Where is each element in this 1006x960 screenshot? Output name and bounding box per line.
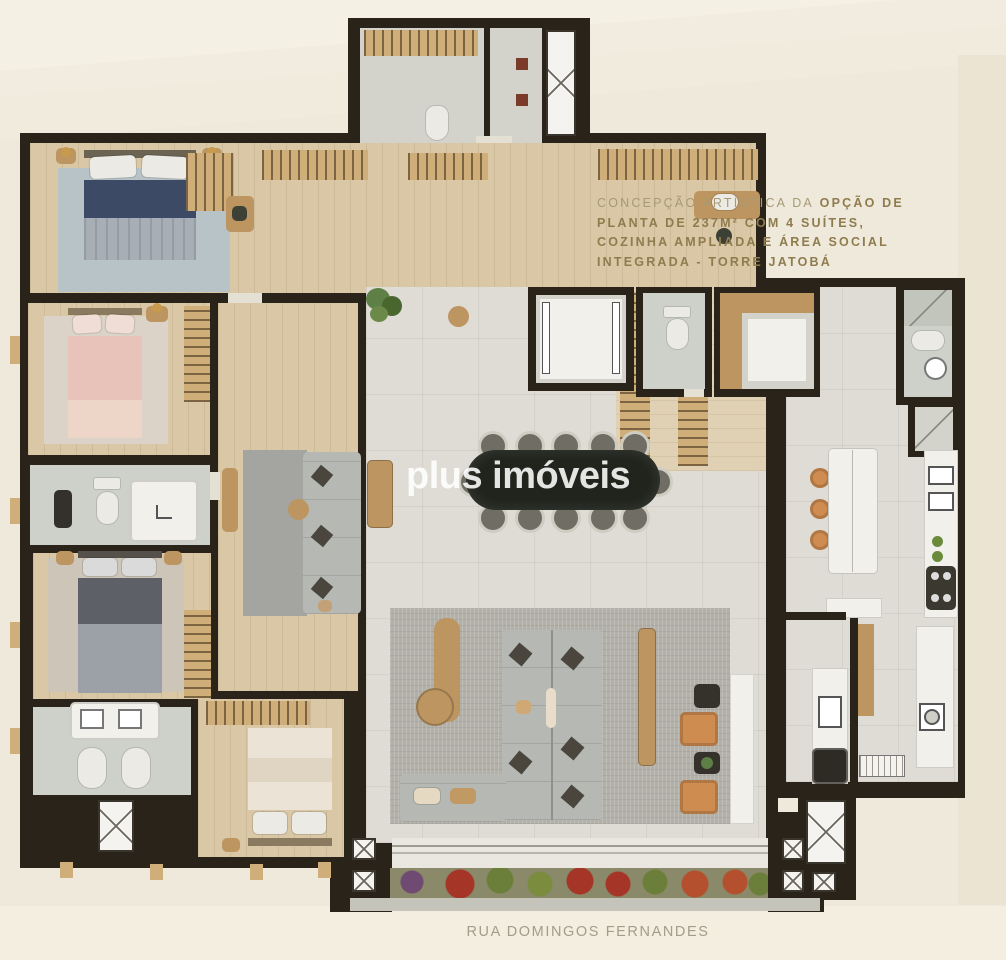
sidewalk — [350, 898, 820, 911]
bedroom3-headboard — [78, 551, 162, 558]
window-line — [392, 845, 768, 847]
bathroom3-toilet — [912, 331, 944, 350]
master-bed-blanket — [84, 218, 196, 260]
bedroom3-closet — [184, 610, 211, 698]
bathroom2-sink — [80, 709, 104, 729]
street-label: RUA DOMINGOS FERNANDES — [398, 924, 778, 940]
kitchen-service-wall — [850, 618, 858, 782]
den-sofa-pillow-tan — [318, 600, 332, 612]
duct-shaft — [98, 800, 134, 852]
bedroom2-blanket — [68, 400, 142, 438]
kitchen-sink — [928, 492, 954, 511]
bedroom3-duvet — [78, 578, 162, 624]
stove-burner — [943, 572, 951, 580]
sofa-pillow — [561, 647, 585, 671]
bedroom3-pillow — [83, 558, 117, 576]
bedroom4-headboard — [248, 838, 332, 846]
bedroom2-headboard — [68, 308, 142, 315]
kitchen-stool — [810, 468, 830, 488]
marketing-annotation: CONCEPÇÃO ARTÍSTICA DA OPÇÃO DE PLANTA D… — [597, 194, 949, 272]
dining-sideboard — [367, 460, 393, 528]
wall-tick — [10, 336, 20, 364]
elevator-rail — [613, 303, 619, 373]
tower-bath-floor — [490, 28, 542, 144]
bedroom2-pillow — [105, 314, 134, 334]
stove-burner — [931, 594, 939, 602]
kitchen-sink-lower — [818, 696, 842, 728]
annotation-bold-line3: COZINHA AMPLIADA E ÁREA SOCIAL — [597, 235, 889, 249]
service-elevator — [806, 800, 846, 864]
bathroom1-door-gap — [210, 472, 220, 500]
den-side-table — [288, 499, 309, 520]
balcony-floor — [392, 838, 768, 872]
bedroom2-pillow — [72, 314, 101, 334]
wall-tick — [10, 622, 20, 648]
den-rug — [243, 450, 307, 616]
wall-tick — [10, 728, 20, 754]
pantry-shelf-left — [720, 293, 742, 389]
balcony-column — [352, 838, 376, 860]
living-sofa-bottom — [400, 774, 506, 822]
bedroom3-pillow — [122, 558, 156, 576]
floorplan-image: CONCEPÇÃO ARTÍSTICA DA OPÇÃO DE PLANTA D… — [0, 0, 1006, 960]
bathroom3-sink — [926, 359, 945, 378]
bedroom4-bed — [248, 728, 332, 846]
table-plant — [701, 757, 713, 769]
stove-burner — [931, 572, 939, 580]
laundry-cabinet — [858, 624, 874, 716]
bathroom2-sink — [118, 709, 142, 729]
annotation-lead: CONCEPÇÃO ARTÍSTICA DA — [597, 196, 814, 210]
kitchen-stool — [810, 530, 830, 550]
tower-door-marker — [516, 94, 528, 106]
master-pillow — [141, 155, 188, 179]
kitchen-stool — [810, 499, 830, 519]
elevator-rail — [543, 303, 549, 373]
sofa-pillow — [509, 751, 533, 775]
master-bed-duvet — [84, 180, 196, 218]
tower-wardrobe — [364, 30, 478, 56]
master-pillow — [89, 155, 136, 179]
elevator-hall — [528, 287, 634, 391]
service-duct — [812, 872, 836, 892]
living-side-table — [694, 752, 720, 774]
bathroom1-lamp — [54, 490, 72, 528]
bathroom1-toilet-tank — [94, 478, 120, 489]
tv-panel — [730, 674, 754, 824]
kitchen-stove — [926, 566, 956, 610]
living-console — [638, 628, 656, 766]
annotation-bold-line2: PLANTA DE 237M² COM 4 SUÍTES, — [597, 216, 865, 230]
living-armchair-orange — [680, 780, 718, 814]
kitchen-plant — [932, 551, 943, 562]
bedroom2-duvet — [68, 336, 142, 400]
bathroom1-faucet — [156, 505, 172, 519]
bedroom4-wardrobe — [206, 701, 310, 725]
sofa-pillow-tan — [516, 700, 531, 714]
washing-machine-door — [926, 711, 938, 723]
bathroom3 — [896, 283, 960, 405]
sofa-pillow — [509, 643, 533, 667]
wall-tick — [150, 864, 163, 880]
bedroom2-bed — [68, 308, 142, 438]
bathroom3-shower — [904, 290, 952, 326]
corridor-wardrobe — [408, 153, 488, 180]
master-lamp-left — [61, 147, 71, 157]
living-side-table — [694, 684, 720, 708]
bedroom4-pillow — [253, 812, 287, 834]
bedroom3-nightstand — [56, 551, 74, 565]
balcony-column — [782, 870, 804, 892]
sofa-pillow-cream — [414, 788, 440, 804]
kitchen-island-seam — [852, 450, 853, 572]
tower-toilet — [426, 106, 448, 140]
bathroom1-toilet — [97, 492, 118, 524]
drying-rack — [860, 756, 904, 776]
living-kitchen-wall — [766, 390, 778, 830]
pantry-room — [714, 287, 820, 397]
tower-door-marker — [516, 58, 528, 70]
balcony-column — [352, 870, 376, 892]
corridor-wardrobe — [262, 150, 368, 180]
sofa-pillow-wood — [450, 788, 476, 804]
background-right-strip — [958, 55, 1006, 905]
entry-closet-floor — [915, 407, 953, 451]
powder-toilet — [667, 319, 688, 349]
planter-bed — [390, 868, 768, 898]
entry-closet — [908, 403, 960, 457]
bedroom3-blanket — [78, 624, 162, 693]
bedroom4-pillow — [292, 812, 326, 834]
living-armchair-orange — [680, 712, 718, 746]
window-line — [392, 852, 768, 854]
hall-stool — [448, 306, 469, 327]
tower-elevator-shaft — [546, 30, 576, 136]
kitchen-plant — [932, 536, 943, 547]
sofa-pillow — [561, 785, 585, 809]
wall-tick — [10, 498, 20, 524]
wall-tick — [318, 862, 331, 878]
stove-burner — [943, 594, 951, 602]
plant — [370, 306, 388, 322]
bedroom4-blanket — [248, 758, 332, 782]
powder-room — [636, 287, 712, 397]
watermark: plus imóveis — [406, 455, 630, 498]
powder-toilet-tank — [664, 307, 690, 317]
kitchen-lower-wall — [786, 612, 846, 620]
bathroom2-toilet — [78, 748, 106, 788]
bedroom4-bench — [222, 838, 240, 852]
elevator-cab — [540, 299, 622, 379]
bedroom2-lamp — [152, 303, 162, 313]
bedroom3-bed — [78, 551, 162, 693]
wall-tick — [60, 862, 73, 878]
hall-door-gap — [228, 293, 262, 303]
annotation-bold-line4: INTEGRADA - TORRE JATOBÁ — [597, 255, 832, 269]
bedroom2-closet — [184, 306, 210, 402]
bathroom2-bidet — [122, 748, 150, 788]
kitchen-island — [828, 448, 878, 574]
kitchen-oven — [812, 748, 848, 784]
sofa-pillow-cream — [546, 688, 556, 728]
kitchen-sink — [928, 466, 954, 485]
pantry-counter — [748, 319, 806, 381]
bedroom3-nightstand — [164, 551, 182, 565]
sofa-pillow — [561, 737, 585, 761]
laundry-counter — [916, 626, 954, 768]
living-sofa-back-to-back — [502, 630, 602, 820]
den-console — [222, 468, 238, 532]
annotation-bold-line1: OPÇÃO DE — [820, 196, 904, 210]
powder-door-gap — [684, 389, 704, 397]
master-desk-chair — [232, 206, 247, 221]
corridor-wardrobe — [598, 149, 758, 180]
washing-machine — [919, 703, 945, 731]
living-round-table — [416, 688, 454, 726]
balcony-column — [782, 838, 804, 860]
master-bed — [84, 150, 196, 264]
wall-tick — [250, 864, 263, 880]
